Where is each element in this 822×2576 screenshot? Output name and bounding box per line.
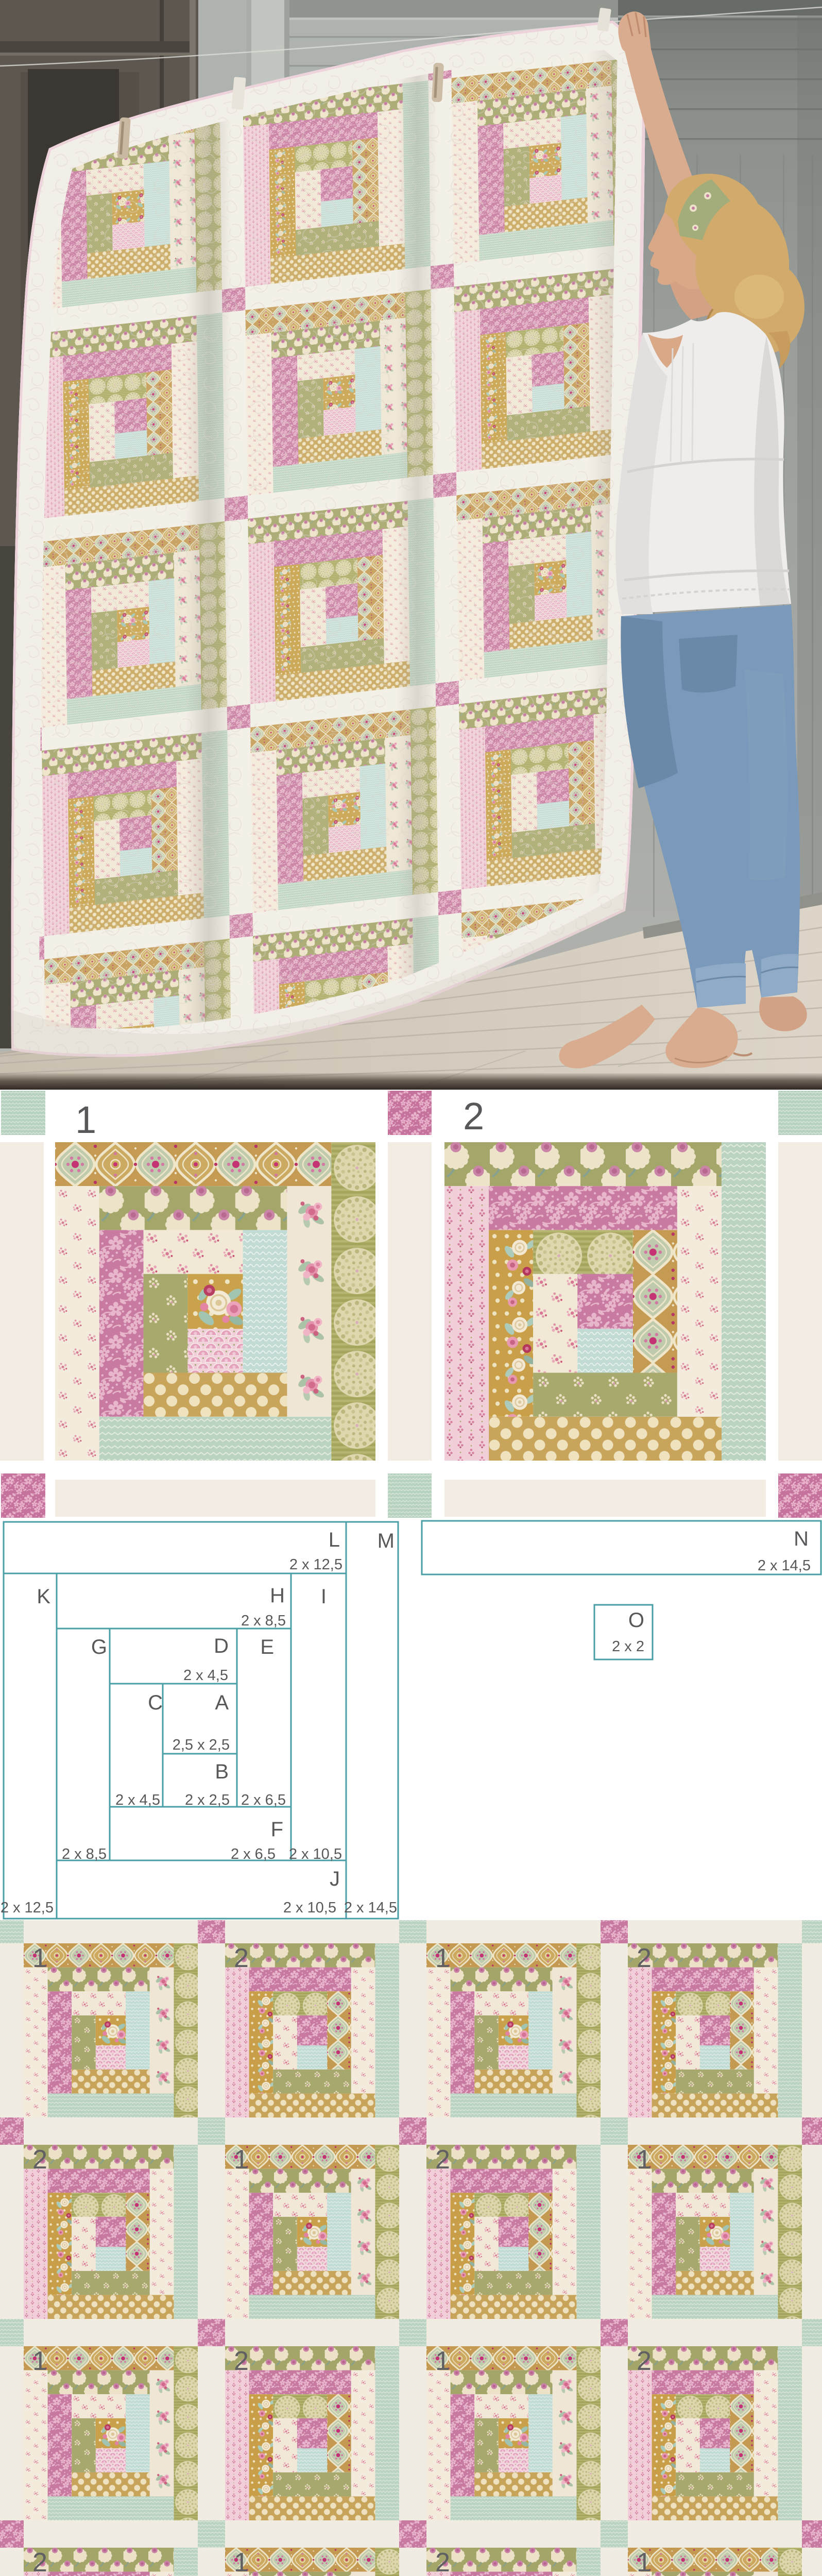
svg-text:C: C	[148, 1691, 163, 1714]
svg-text:2 x 10,5: 2 x 10,5	[283, 1900, 336, 1916]
svg-text:2 x 12,5: 2 x 12,5	[289, 1556, 342, 1573]
svg-text:2 x 14,5: 2 x 14,5	[758, 1557, 811, 1574]
svg-text:2 x 8,5: 2 x 8,5	[241, 1613, 286, 1629]
svg-text:2 x 6,5: 2 x 6,5	[241, 1792, 286, 1808]
svg-text:M: M	[378, 1530, 395, 1552]
svg-text:2 x 2: 2 x 2	[612, 1638, 644, 1655]
svg-text:G: G	[91, 1636, 107, 1658]
svg-text:H: H	[270, 1584, 285, 1607]
svg-text:1: 1	[75, 1098, 96, 1141]
svg-text:2 x 14,5: 2 x 14,5	[344, 1900, 397, 1916]
svg-text:L: L	[329, 1529, 340, 1551]
svg-text:F: F	[271, 1818, 283, 1841]
svg-text:E: E	[260, 1636, 274, 1658]
svg-text:K: K	[37, 1585, 50, 1608]
svg-text:B: B	[215, 1760, 229, 1783]
svg-text:O: O	[628, 1609, 644, 1632]
svg-text:2 x 12,5: 2 x 12,5	[1, 1900, 54, 1916]
svg-text:2 x 4,5: 2 x 4,5	[183, 1667, 228, 1684]
svg-text:A: A	[215, 1691, 229, 1714]
svg-text:2 x 2,5: 2 x 2,5	[185, 1792, 230, 1808]
svg-text:2 x 6,5: 2 x 6,5	[231, 1846, 276, 1862]
svg-text:N: N	[794, 1528, 809, 1550]
svg-text:J: J	[330, 1868, 340, 1890]
svg-text:D: D	[214, 1635, 229, 1657]
svg-text:I: I	[321, 1585, 327, 1608]
svg-text:2 x 4,5: 2 x 4,5	[115, 1792, 160, 1808]
svg-text:2: 2	[463, 1095, 484, 1138]
svg-text:2 x 8,5: 2 x 8,5	[62, 1846, 107, 1862]
svg-text:2,5 x 2,5: 2,5 x 2,5	[173, 1737, 230, 1753]
svg-text:2 x 10,5: 2 x 10,5	[289, 1846, 342, 1862]
